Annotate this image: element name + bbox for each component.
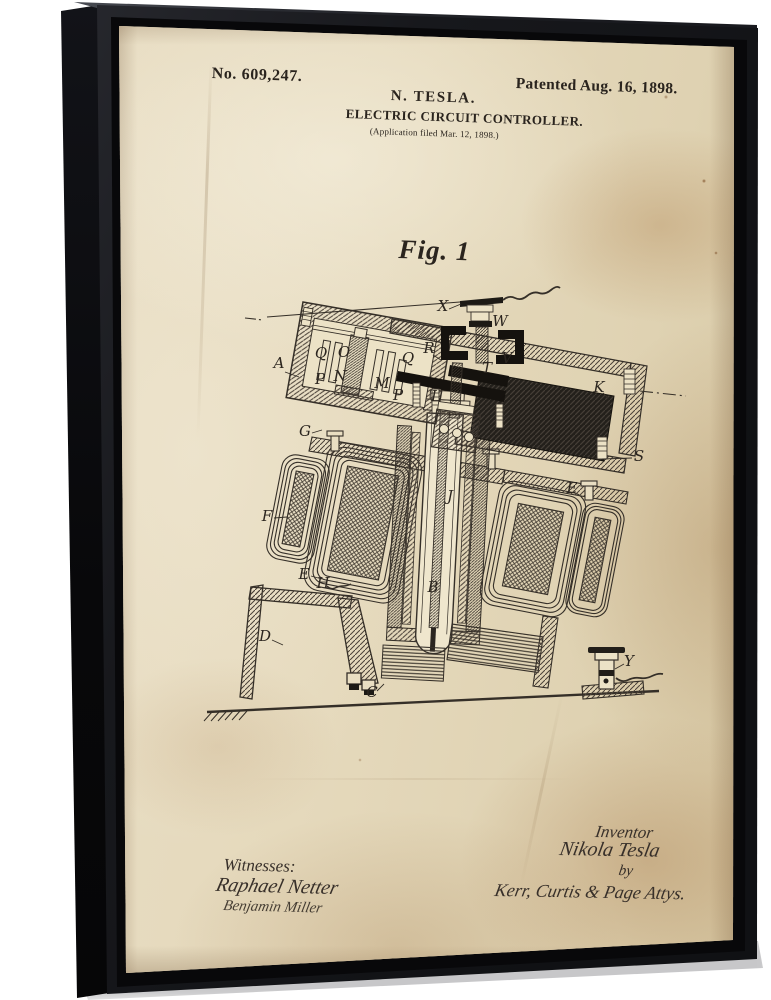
part-label: P: [392, 386, 404, 404]
part-label: R: [422, 339, 434, 357]
housing-a: [286, 302, 453, 424]
part-label: E: [566, 479, 578, 497]
part-label: A: [272, 354, 285, 372]
framed-patent-print-photo: { "artwork": { "header": { "patent_numbe…: [0, 0, 771, 1000]
part-label: F: [261, 507, 273, 525]
part-label: X: [437, 297, 450, 315]
part-label: L: [430, 387, 441, 405]
part-label: Q: [402, 349, 414, 367]
part-label: B: [426, 578, 438, 596]
part-label: P: [314, 370, 326, 388]
part-label: M: [373, 374, 390, 392]
part-label: E: [298, 565, 310, 583]
witness-signature-2: Benjamin Miller: [222, 898, 324, 918]
part-label: W: [492, 312, 509, 330]
part-label: S: [634, 447, 644, 465]
part-label: Q: [315, 344, 327, 362]
by-label: by: [617, 863, 634, 880]
part-label: D: [258, 627, 271, 645]
part-label: K: [592, 378, 605, 396]
attorney-signature: Kerr, Curtis & Page Attys.: [493, 880, 688, 904]
inventor-signature: Nikola Tesla: [558, 838, 662, 863]
witness-signature-1: Raphael Netter: [214, 874, 341, 900]
part-label: N: [332, 367, 347, 385]
part-label: O: [338, 343, 350, 361]
coil-e-outer: [564, 501, 627, 619]
part-label: C: [366, 683, 378, 701]
part-label: H: [315, 574, 330, 592]
part-label: Y: [624, 652, 636, 670]
machine-figure: [204, 287, 686, 721]
part-label: G: [299, 422, 311, 440]
part-label: T: [482, 359, 493, 377]
coil-right-inner: [478, 479, 588, 619]
